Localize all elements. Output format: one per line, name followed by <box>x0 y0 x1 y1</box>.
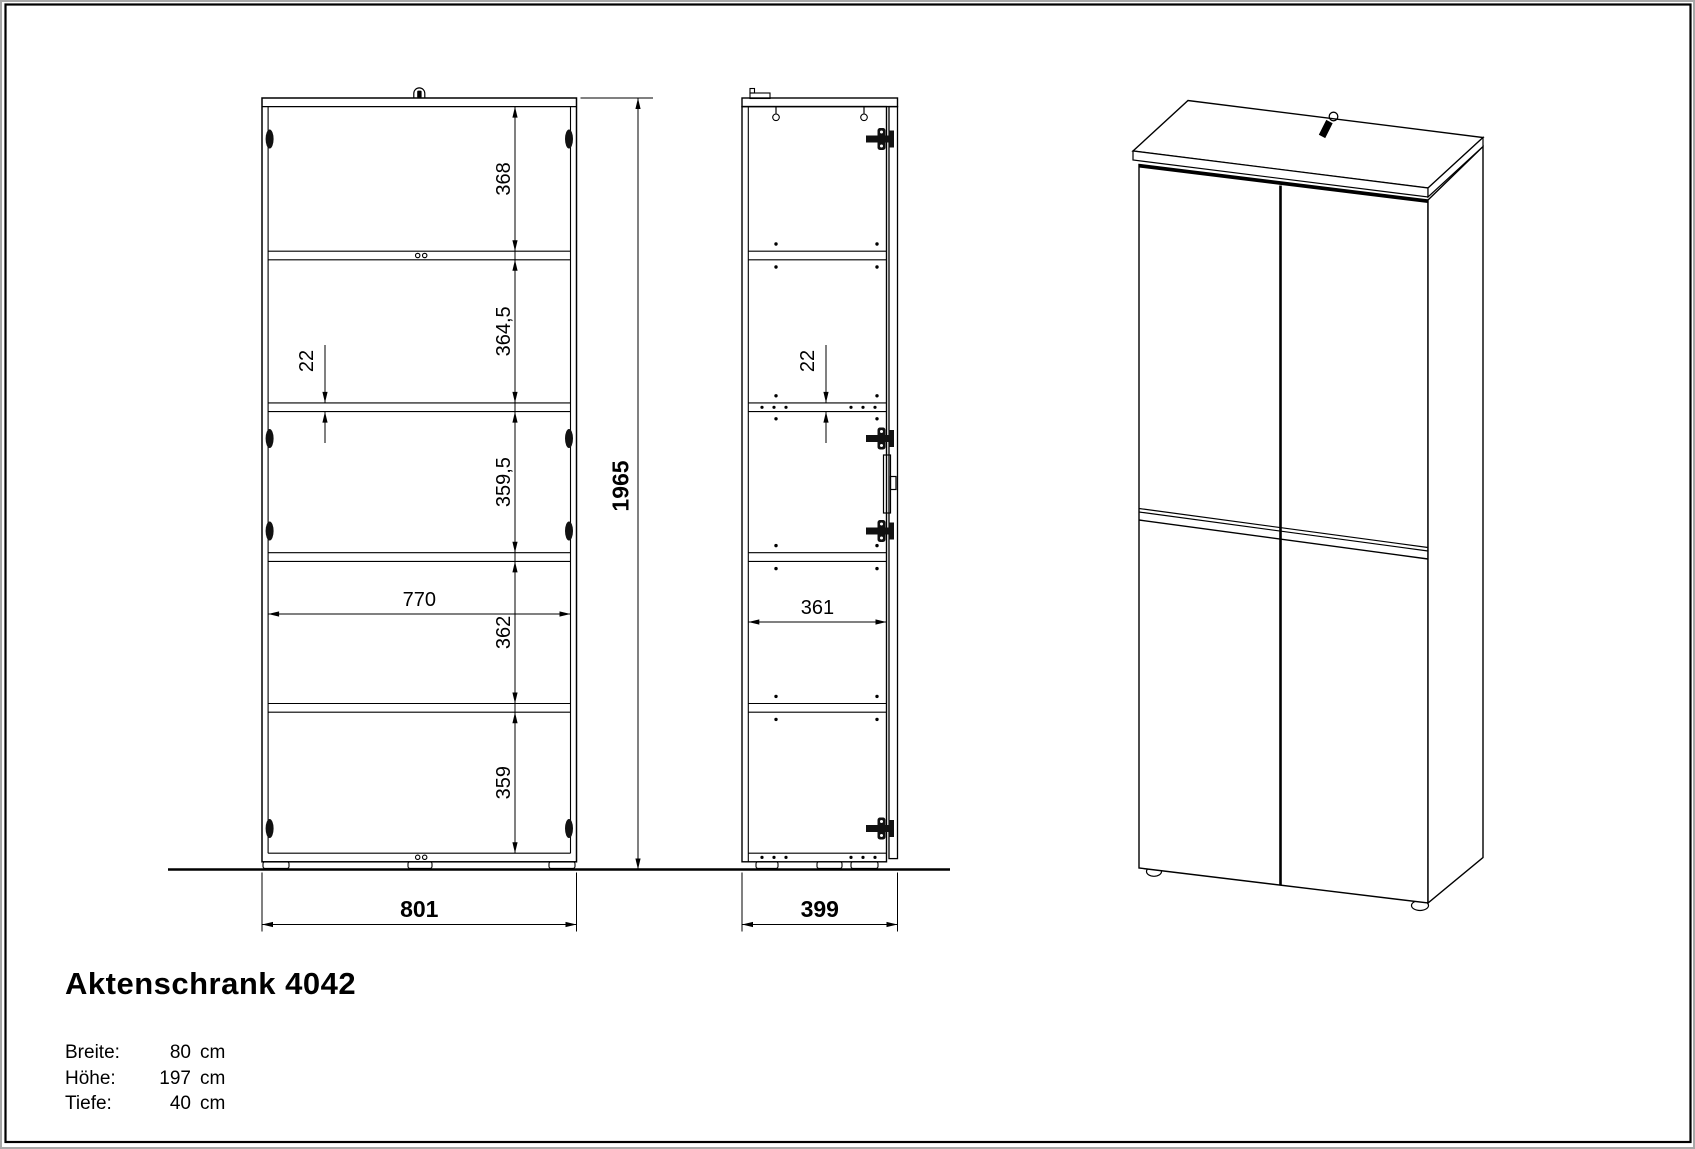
chain-arrow <box>512 693 517 704</box>
hinge-bolt <box>880 834 883 837</box>
spec-row-breite: Breite: 80 cm <box>65 1040 356 1066</box>
hinge-bolt <box>880 145 883 148</box>
hinge-bump-icon <box>565 130 573 149</box>
screw-hole <box>784 856 787 859</box>
hinge-bump-icon <box>266 130 274 149</box>
cam-hole <box>423 855 427 859</box>
side-topboard <box>742 98 898 107</box>
side-view <box>742 89 898 869</box>
screw-hole <box>784 406 787 409</box>
shelf-pin-hole <box>774 544 777 547</box>
front-view <box>262 88 577 868</box>
side-panel-outline <box>742 107 887 862</box>
spec-unit: cm <box>200 1091 225 1117</box>
shelf-pin-hole <box>774 567 777 570</box>
dim-arrow <box>635 98 640 109</box>
hinge-bump-icon <box>565 429 573 448</box>
chain-arrow <box>512 542 517 553</box>
hinge-bolt <box>880 430 883 433</box>
screw-hole <box>760 406 763 409</box>
shelf-pin-hole <box>875 242 878 245</box>
screw-hole <box>760 856 763 859</box>
shelf-pin-hole <box>774 394 777 397</box>
front-height-dim: 1965 <box>608 460 634 511</box>
door-handle-knob <box>891 477 897 490</box>
shelf-pin-hole <box>875 695 878 698</box>
side-foot <box>851 862 878 869</box>
shelf-pin-hole <box>774 695 777 698</box>
front-foot <box>408 862 432 869</box>
front-inner-width-dim: 770 <box>403 589 436 611</box>
front-width-dim: 801 <box>400 896 439 922</box>
hinge-bolt <box>880 820 883 823</box>
bolt-head-icon <box>861 114 868 121</box>
spec-unit: cm <box>200 1040 225 1066</box>
hinge-plate-icon <box>889 820 895 837</box>
hinge-bump-icon <box>266 429 274 448</box>
screw-hole <box>849 856 852 859</box>
hinge-bolt <box>880 537 883 540</box>
dim-arrow <box>748 619 759 624</box>
screw-hole <box>849 406 852 409</box>
chain-arrow <box>512 392 517 403</box>
iso-view <box>1133 101 1483 911</box>
hinge-plate-icon <box>889 430 895 447</box>
screw-hole <box>873 406 876 409</box>
front-shelf-gap-dim-3: 362 <box>493 616 515 649</box>
chain-arrow <box>512 240 517 251</box>
spec-row-hoehe: Höhe: 197 cm <box>65 1066 356 1092</box>
dim-arrow <box>262 922 273 927</box>
hinge-bump-icon <box>266 522 274 541</box>
front-shelf-gap-dim-4: 359 <box>493 766 515 799</box>
shelf-pin-hole <box>875 265 878 268</box>
spec-row-tiefe: Tiefe: 40 cm <box>65 1091 356 1117</box>
chain-arrow <box>512 412 517 423</box>
screw-hole <box>861 406 864 409</box>
shelf-pin-hole <box>774 242 777 245</box>
cam-hole <box>423 253 427 257</box>
dim-arrow <box>635 859 640 870</box>
side-dimensions: 22361399 <box>742 345 898 932</box>
dim-arrow <box>823 392 828 403</box>
hinge-bolt <box>880 523 883 526</box>
chain-arrow <box>512 107 517 118</box>
dim-arrow <box>566 922 577 927</box>
spec-label: Höhe: <box>65 1066 123 1092</box>
dim-arrow <box>268 611 279 616</box>
iso-front-face <box>1139 165 1428 904</box>
side-inner-depth-dim: 361 <box>801 597 834 619</box>
chain-arrow <box>512 712 517 723</box>
hinge-bolt <box>880 444 883 447</box>
shelf-pin-hole <box>875 718 878 721</box>
spec-value: 197 <box>123 1066 191 1092</box>
shelf-pin-hole <box>875 544 878 547</box>
side-foot <box>817 862 842 869</box>
side-wall-bracket-tab <box>750 89 755 94</box>
front-shelf-thickness-dim: 22 <box>296 350 318 372</box>
dim-arrow <box>876 619 887 624</box>
screw-hole <box>772 856 775 859</box>
cam-hole <box>416 855 420 859</box>
side-shelf-thickness-dim: 22 <box>797 350 819 372</box>
hinge-bump-icon <box>565 819 573 838</box>
spec-unit: cm <box>200 1066 225 1092</box>
spec-value: 80 <box>123 1040 191 1066</box>
dim-arrow <box>322 412 327 423</box>
drawing-title: Aktenschrank 4042 <box>65 966 356 1002</box>
dim-arrow <box>823 412 828 423</box>
iso-right-face <box>1428 147 1483 904</box>
shelf-pin-hole <box>774 718 777 721</box>
title-block: Aktenschrank 4042 Breite: 80 cm Höhe: 19… <box>65 966 356 1117</box>
dim-arrow <box>887 922 898 927</box>
hinge-bump-icon <box>266 819 274 838</box>
side-foot <box>756 862 778 869</box>
dim-arrow <box>322 392 327 403</box>
dim-arrow <box>742 922 753 927</box>
chain-arrow <box>512 842 517 853</box>
spec-list: Breite: 80 cm Höhe: 197 cm Tiefe: 40 cm <box>65 1040 356 1117</box>
spec-value: 40 <box>123 1091 191 1117</box>
shelf-pin-hole <box>875 394 878 397</box>
front-foot <box>263 862 289 869</box>
front-outline <box>262 98 577 862</box>
shelf-pin-hole <box>774 265 777 268</box>
dim-arrow <box>560 611 571 616</box>
shelf-pin-hole <box>875 567 878 570</box>
front-shelf-gap-dim-1: 364,5 <box>493 306 515 356</box>
spec-label: Tiefe: <box>65 1091 123 1117</box>
front-shelf-gap-dim-2: 359,5 <box>493 457 515 507</box>
hinge-plate-icon <box>889 131 895 148</box>
front-dimensions: 368364,5359,5362359227701965801 <box>262 98 653 932</box>
screw-hole <box>772 406 775 409</box>
bolt-head-icon <box>773 114 780 121</box>
chain-arrow <box>512 561 517 572</box>
cam-hole <box>416 253 420 257</box>
shelf-pin-hole <box>875 417 878 420</box>
chain-arrow <box>512 260 517 271</box>
front-foot <box>549 862 575 869</box>
front-shelf-gap-dim-0: 368 <box>493 162 515 195</box>
screw-hole <box>873 856 876 859</box>
wall-bracket-slot <box>417 91 421 98</box>
hinge-bump-icon <box>565 522 573 541</box>
hinge-plate-icon <box>889 523 895 540</box>
hinge-bolt <box>880 131 883 134</box>
shelf-pin-hole <box>774 417 777 420</box>
side-depth-dim: 399 <box>801 896 839 922</box>
spec-label: Breite: <box>65 1040 123 1066</box>
screw-hole <box>861 856 864 859</box>
